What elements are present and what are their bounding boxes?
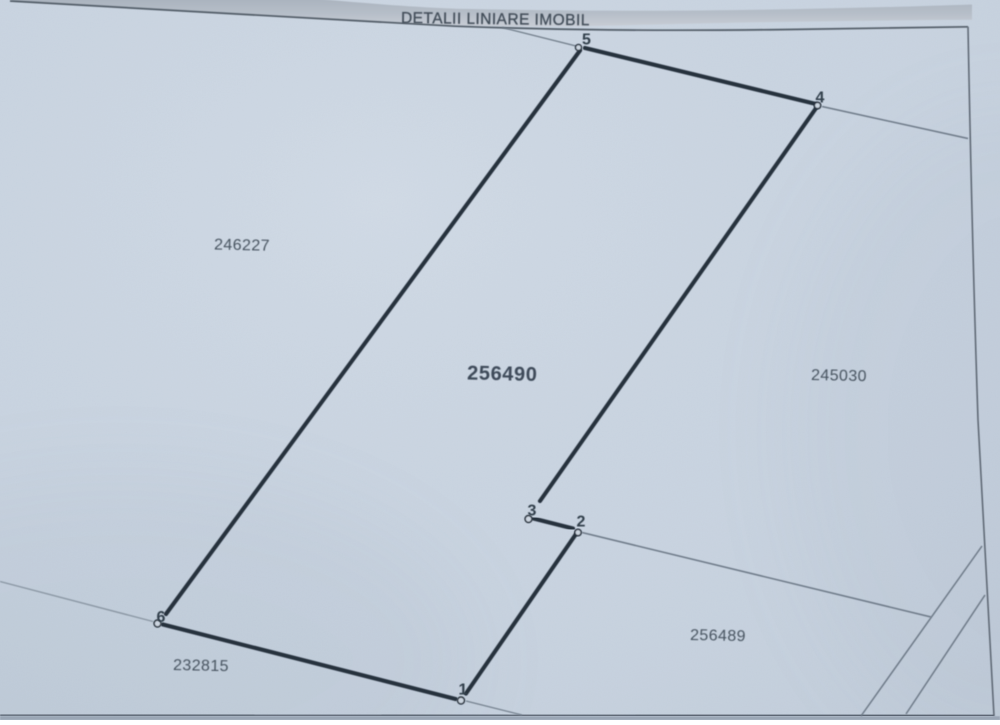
svg-text:1: 1 [459, 682, 468, 699]
svg-text:5: 5 [582, 32, 591, 49]
svg-text:4: 4 [816, 90, 825, 107]
svg-text:256490: 256490 [467, 363, 538, 387]
svg-text:232815: 232815 [173, 657, 229, 675]
svg-text:2: 2 [577, 514, 586, 531]
svg-text:DETALII LINIARE IMOBIL: DETALII LINIARE IMOBIL [401, 10, 590, 29]
svg-text:3: 3 [528, 503, 537, 520]
svg-text:256489: 256489 [690, 627, 746, 645]
svg-text:246227: 246227 [214, 237, 270, 255]
svg-text:245030: 245030 [811, 367, 867, 385]
svg-text:6: 6 [157, 609, 166, 626]
